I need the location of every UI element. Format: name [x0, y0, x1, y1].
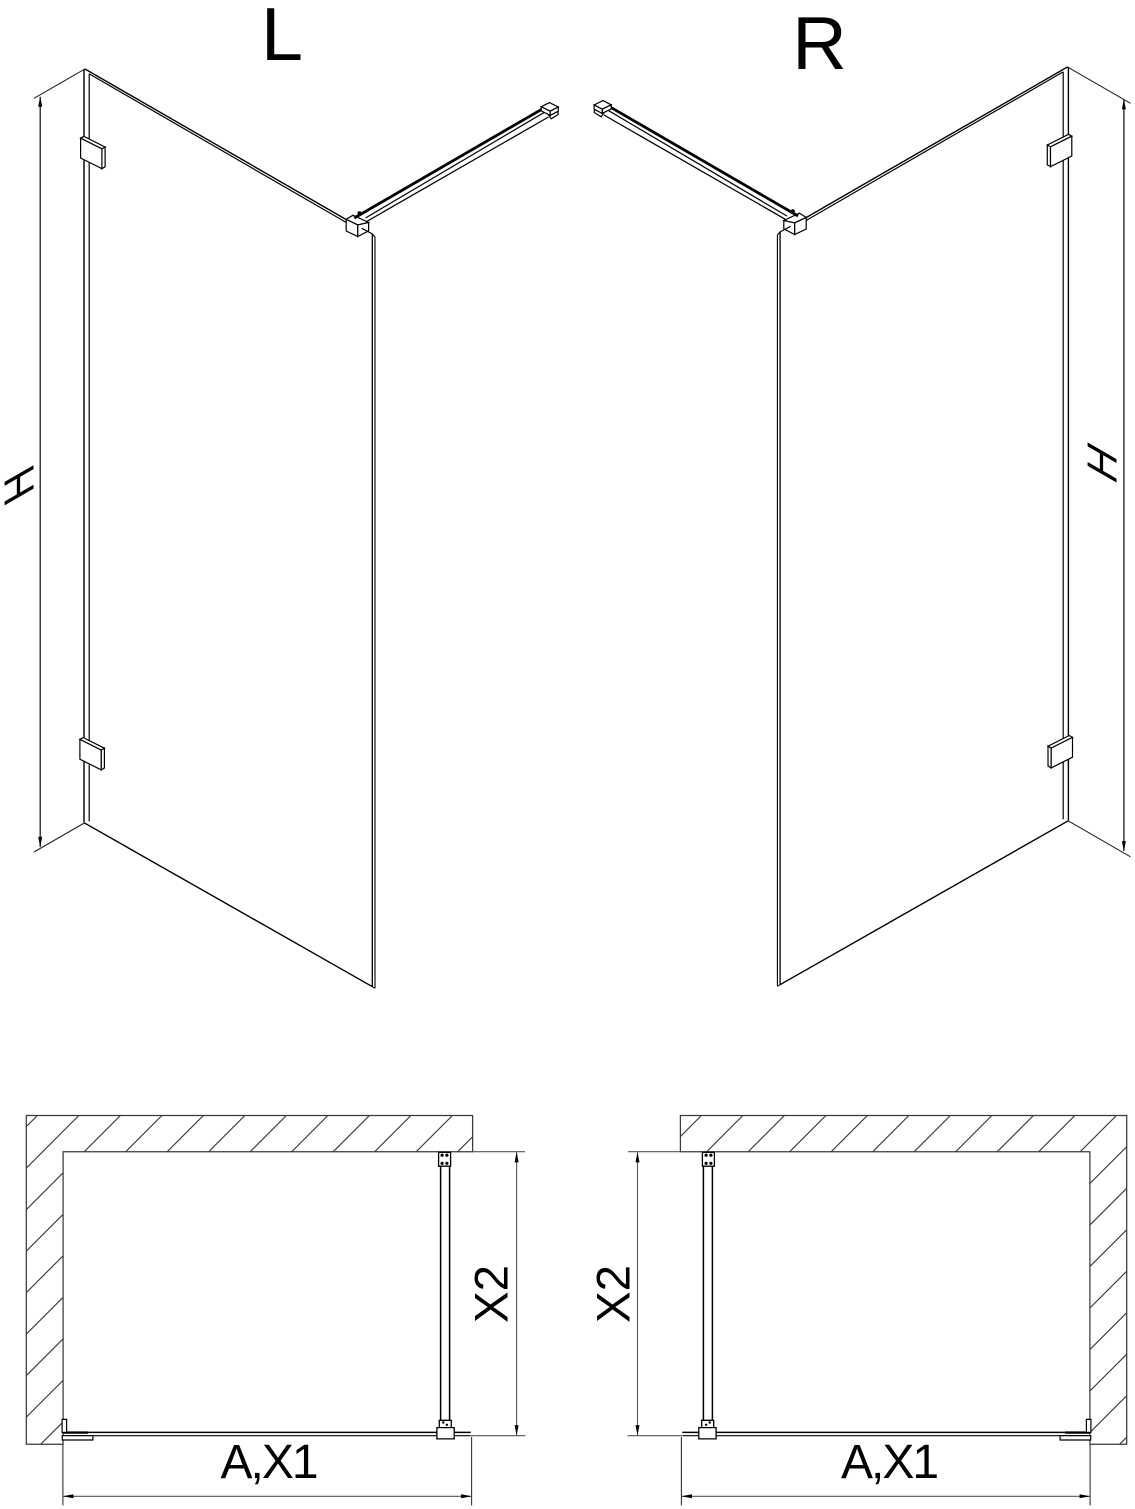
svg-text:X2: X2 — [588, 1265, 641, 1323]
svg-text:X2: X2 — [466, 1265, 519, 1323]
svg-text:L: L — [261, 0, 303, 76]
svg-text:H: H — [0, 456, 43, 514]
svg-text:A,X1: A,X1 — [841, 1436, 937, 1489]
svg-text:R: R — [792, 1, 847, 85]
svg-text:H: H — [1079, 434, 1126, 492]
svg-text:A,X1: A,X1 — [220, 1436, 316, 1489]
